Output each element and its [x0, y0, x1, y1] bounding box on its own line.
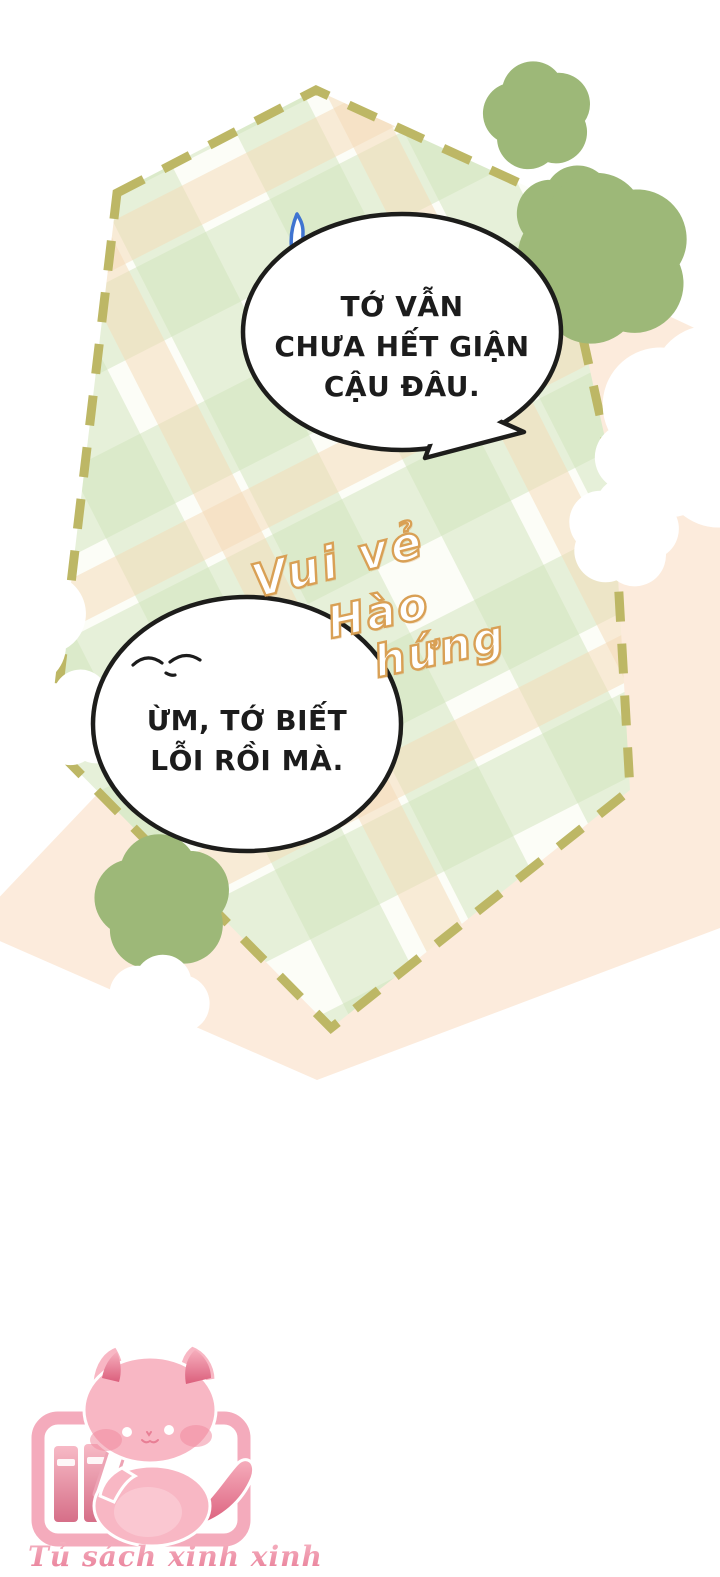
comic-artwork	[0, 0, 720, 1577]
comic-page: TỚ VẪN CHƯA HẾT GIẬN CẬU ĐÂU. ỪM, TỚ BIẾ…	[0, 0, 720, 1577]
speech-line: TỚ VẪN	[247, 287, 557, 327]
cat-eye	[164, 1425, 174, 1435]
cream-star-icon	[0, 578, 51, 649]
speech-line: LỖI RỒI MÀ.	[97, 741, 397, 781]
pink-cat-mascot	[38, 1345, 254, 1546]
watermark-text: Tủ sách xinh xinh	[28, 1540, 323, 1573]
speech-line: CẬU ĐÂU.	[247, 367, 557, 407]
speech-line: ỪM, TỚ BIẾT	[97, 701, 397, 741]
green-outline-star-icon	[131, 869, 195, 931]
speech-bubble-1-text: TỚ VẪN CHƯA HẾT GIẬN CẬU ĐÂU.	[247, 287, 557, 407]
speech-bubble-2-text: ỪM, TỚ BIẾT LỖI RỒI MÀ.	[97, 701, 397, 781]
cream-star-icon	[597, 505, 650, 556]
speech-line: CHƯA HẾT GIẬN	[247, 327, 557, 367]
cream-star-icon	[133, 979, 184, 1029]
cat-eye	[122, 1427, 132, 1437]
green-outline-star-icon	[511, 88, 565, 140]
